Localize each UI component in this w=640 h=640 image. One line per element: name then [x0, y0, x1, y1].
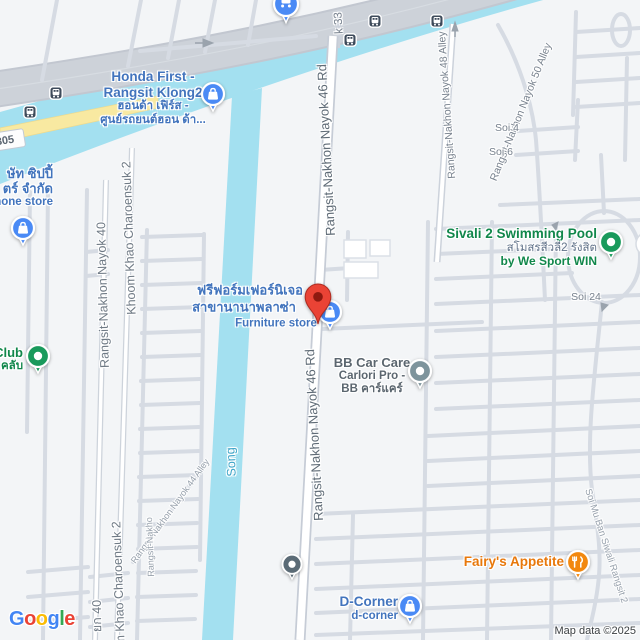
google-logo-letter: g	[48, 608, 60, 630]
poi-furniture-line1[interactable]: ฟรีฟอร์มเฟอร์นิเจอ	[197, 282, 303, 297]
bus-stop-icon[interactable]	[343, 33, 357, 52]
road-soi-6	[516, 151, 578, 155]
poi-sivali-line3: by We Sport WIN	[446, 255, 597, 269]
google-logo-letter: e	[64, 608, 75, 630]
poi-label-honda[interactable]: Honda First - Rangsit Klong2 ฮอนด้า เฟิร…	[100, 69, 206, 127]
bus-stop-icon[interactable]	[23, 105, 37, 124]
poi-honda-line1: Honda First -	[100, 69, 206, 85]
poi-label-phone-store[interactable]: ษัท ซิปปี้ ตร์ จำกัด hone store	[0, 166, 53, 209]
poi-club-line1: Club	[0, 345, 23, 360]
google-logo-letter: G	[9, 608, 24, 630]
gray-dot-pin-small[interactable]	[279, 551, 305, 586]
shopping-bag-pin-honda[interactable]	[198, 79, 228, 118]
shopping-bag-pin-phone-store[interactable]	[8, 213, 38, 252]
poi-bb-line1: BB Car Care	[334, 355, 411, 370]
google-logo-letter: o	[36, 608, 48, 630]
road-soi-4	[518, 127, 578, 131]
poi-phone-line1: ษัท ซิปปี้	[0, 166, 53, 181]
green-dot-pin-sivali[interactable]	[596, 227, 626, 266]
poi-furniture-line2[interactable]: สาขานานาพลาซ่า	[192, 299, 296, 314]
poi-label-club[interactable]: Club คลับ	[0, 345, 23, 373]
poi-honda-line4: ศูนย์รถยนต์ฮอน ด้า...	[100, 114, 206, 127]
shopping-bag-pin-dcorner[interactable]	[395, 591, 425, 630]
red-location-pin[interactable]	[304, 283, 332, 330]
bus-stop-icon[interactable]	[49, 86, 63, 105]
poi-phone-line2: ตร์ จำกัด	[0, 181, 53, 196]
route-shield-label: 305	[0, 133, 15, 148]
gray-dot-pin-bb-car-care[interactable]	[405, 356, 435, 395]
bus-stop-icon[interactable]	[430, 14, 444, 33]
map-canvas[interactable]: 305 Rangsit-Nakhon Nayok 46 Rd Rangsit-N…	[0, 0, 640, 640]
poi-bb-line3: BB คาร์แคร์	[334, 383, 411, 396]
poi-honda-line2: Rangsit Klong2	[100, 85, 206, 101]
road-label-nayok33: k 33	[332, 12, 345, 34]
poi-label-dcorner[interactable]: D-Corner d-corner	[339, 594, 398, 623]
poi-honda-line3: ฮอนด้า เฟิร์ส -	[100, 100, 206, 113]
poi-club-line2: คลับ	[0, 360, 23, 373]
road-label-soi4: Soi 4	[495, 122, 519, 134]
building-blocks	[344, 240, 390, 278]
road-label-nayok40-bottom: ยก 40	[87, 600, 108, 633]
canal-vertical	[202, 88, 262, 640]
google-logo-letter: o	[24, 608, 36, 630]
poi-label-sivali[interactable]: Sivali 2 Swimming Pool สโมสรสีวลี2 รังสิ…	[446, 226, 597, 269]
restaurant-pin-fairys[interactable]	[563, 547, 593, 586]
poi-bb-line2: Carlori Pro -	[334, 370, 411, 383]
poi-label-bb-car-care[interactable]: BB Car Care Carlori Pro - BB คาร์แคร์	[334, 355, 411, 397]
poi-dcorner-line1: D-Corner	[339, 594, 398, 610]
water-label-song: Song	[223, 447, 239, 477]
poi-sivali-line2: สโมสรสีวลี2 รังสิต	[446, 242, 597, 255]
poi-label-fairys[interactable]: Fairy's Appetite	[464, 554, 564, 570]
road-label-soi6: Soi 6	[489, 146, 513, 158]
transit-pin[interactable]	[271, 0, 301, 30]
poi-phone-line3: hone store	[0, 196, 53, 209]
google-logo[interactable]: Google	[9, 608, 75, 631]
road-siwali	[587, 302, 602, 640]
road-label-soi24: Soi 24	[571, 291, 601, 303]
map-data-attribution: Map data ©2025	[555, 625, 637, 637]
bus-stop-icon[interactable]	[368, 14, 382, 33]
poi-sivali-line1: Sivali 2 Swimming Pool	[446, 226, 597, 242]
poi-dcorner-line2: d-corner	[339, 610, 398, 623]
road-label-rangsit-small: Rangsit-Nakho	[144, 517, 156, 577]
green-dot-pin-club[interactable]	[23, 341, 53, 380]
